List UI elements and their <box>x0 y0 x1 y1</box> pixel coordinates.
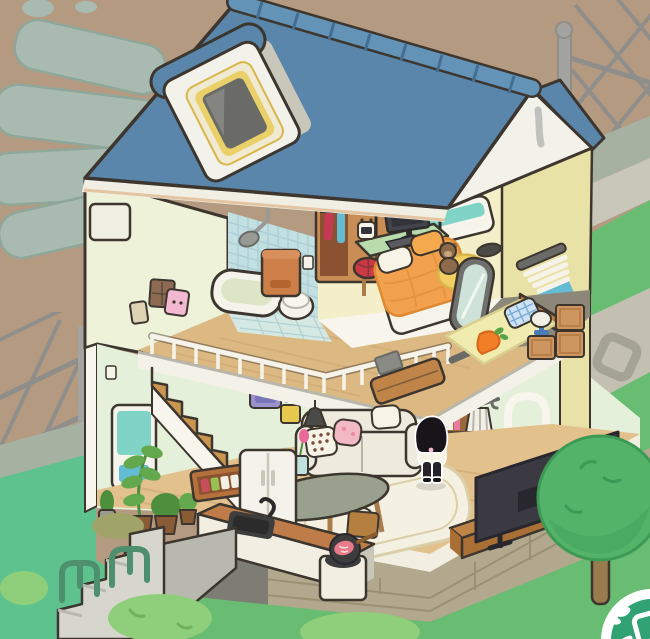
wall-outlet <box>106 366 116 379</box>
alarm-clock[interactable] <box>358 218 375 239</box>
white-pillow <box>371 405 401 429</box>
laundry-cabinet[interactable] <box>262 250 300 296</box>
fence-post-ball <box>556 22 572 38</box>
hanging-red-cloth <box>323 213 333 240</box>
yellow-art[interactable] <box>281 405 300 423</box>
gable-drip <box>538 110 541 144</box>
character-shoe <box>433 478 441 482</box>
character-hair <box>416 417 446 452</box>
stacked-crates[interactable] <box>556 305 584 357</box>
pink-note[interactable] <box>164 289 189 317</box>
tulip <box>299 429 309 443</box>
wall-vent-box <box>90 204 130 240</box>
crate-nightstand[interactable] <box>528 336 555 359</box>
pebble <box>75 1 97 13</box>
bathroom-switch <box>303 256 313 269</box>
beige-note[interactable] <box>130 301 149 324</box>
wall-cut-edge <box>85 344 97 512</box>
character-shoe <box>423 478 431 482</box>
plant-pot <box>180 510 196 524</box>
pink-pillow <box>333 419 363 447</box>
hanging-blue-towel <box>337 212 345 243</box>
character-collar <box>429 448 434 453</box>
isometric-house-scene: Cozy isometric two-story house cutaway —… <box>0 0 650 639</box>
game-screen: Cozy isometric two-story house cutaway —… <box>0 0 650 639</box>
